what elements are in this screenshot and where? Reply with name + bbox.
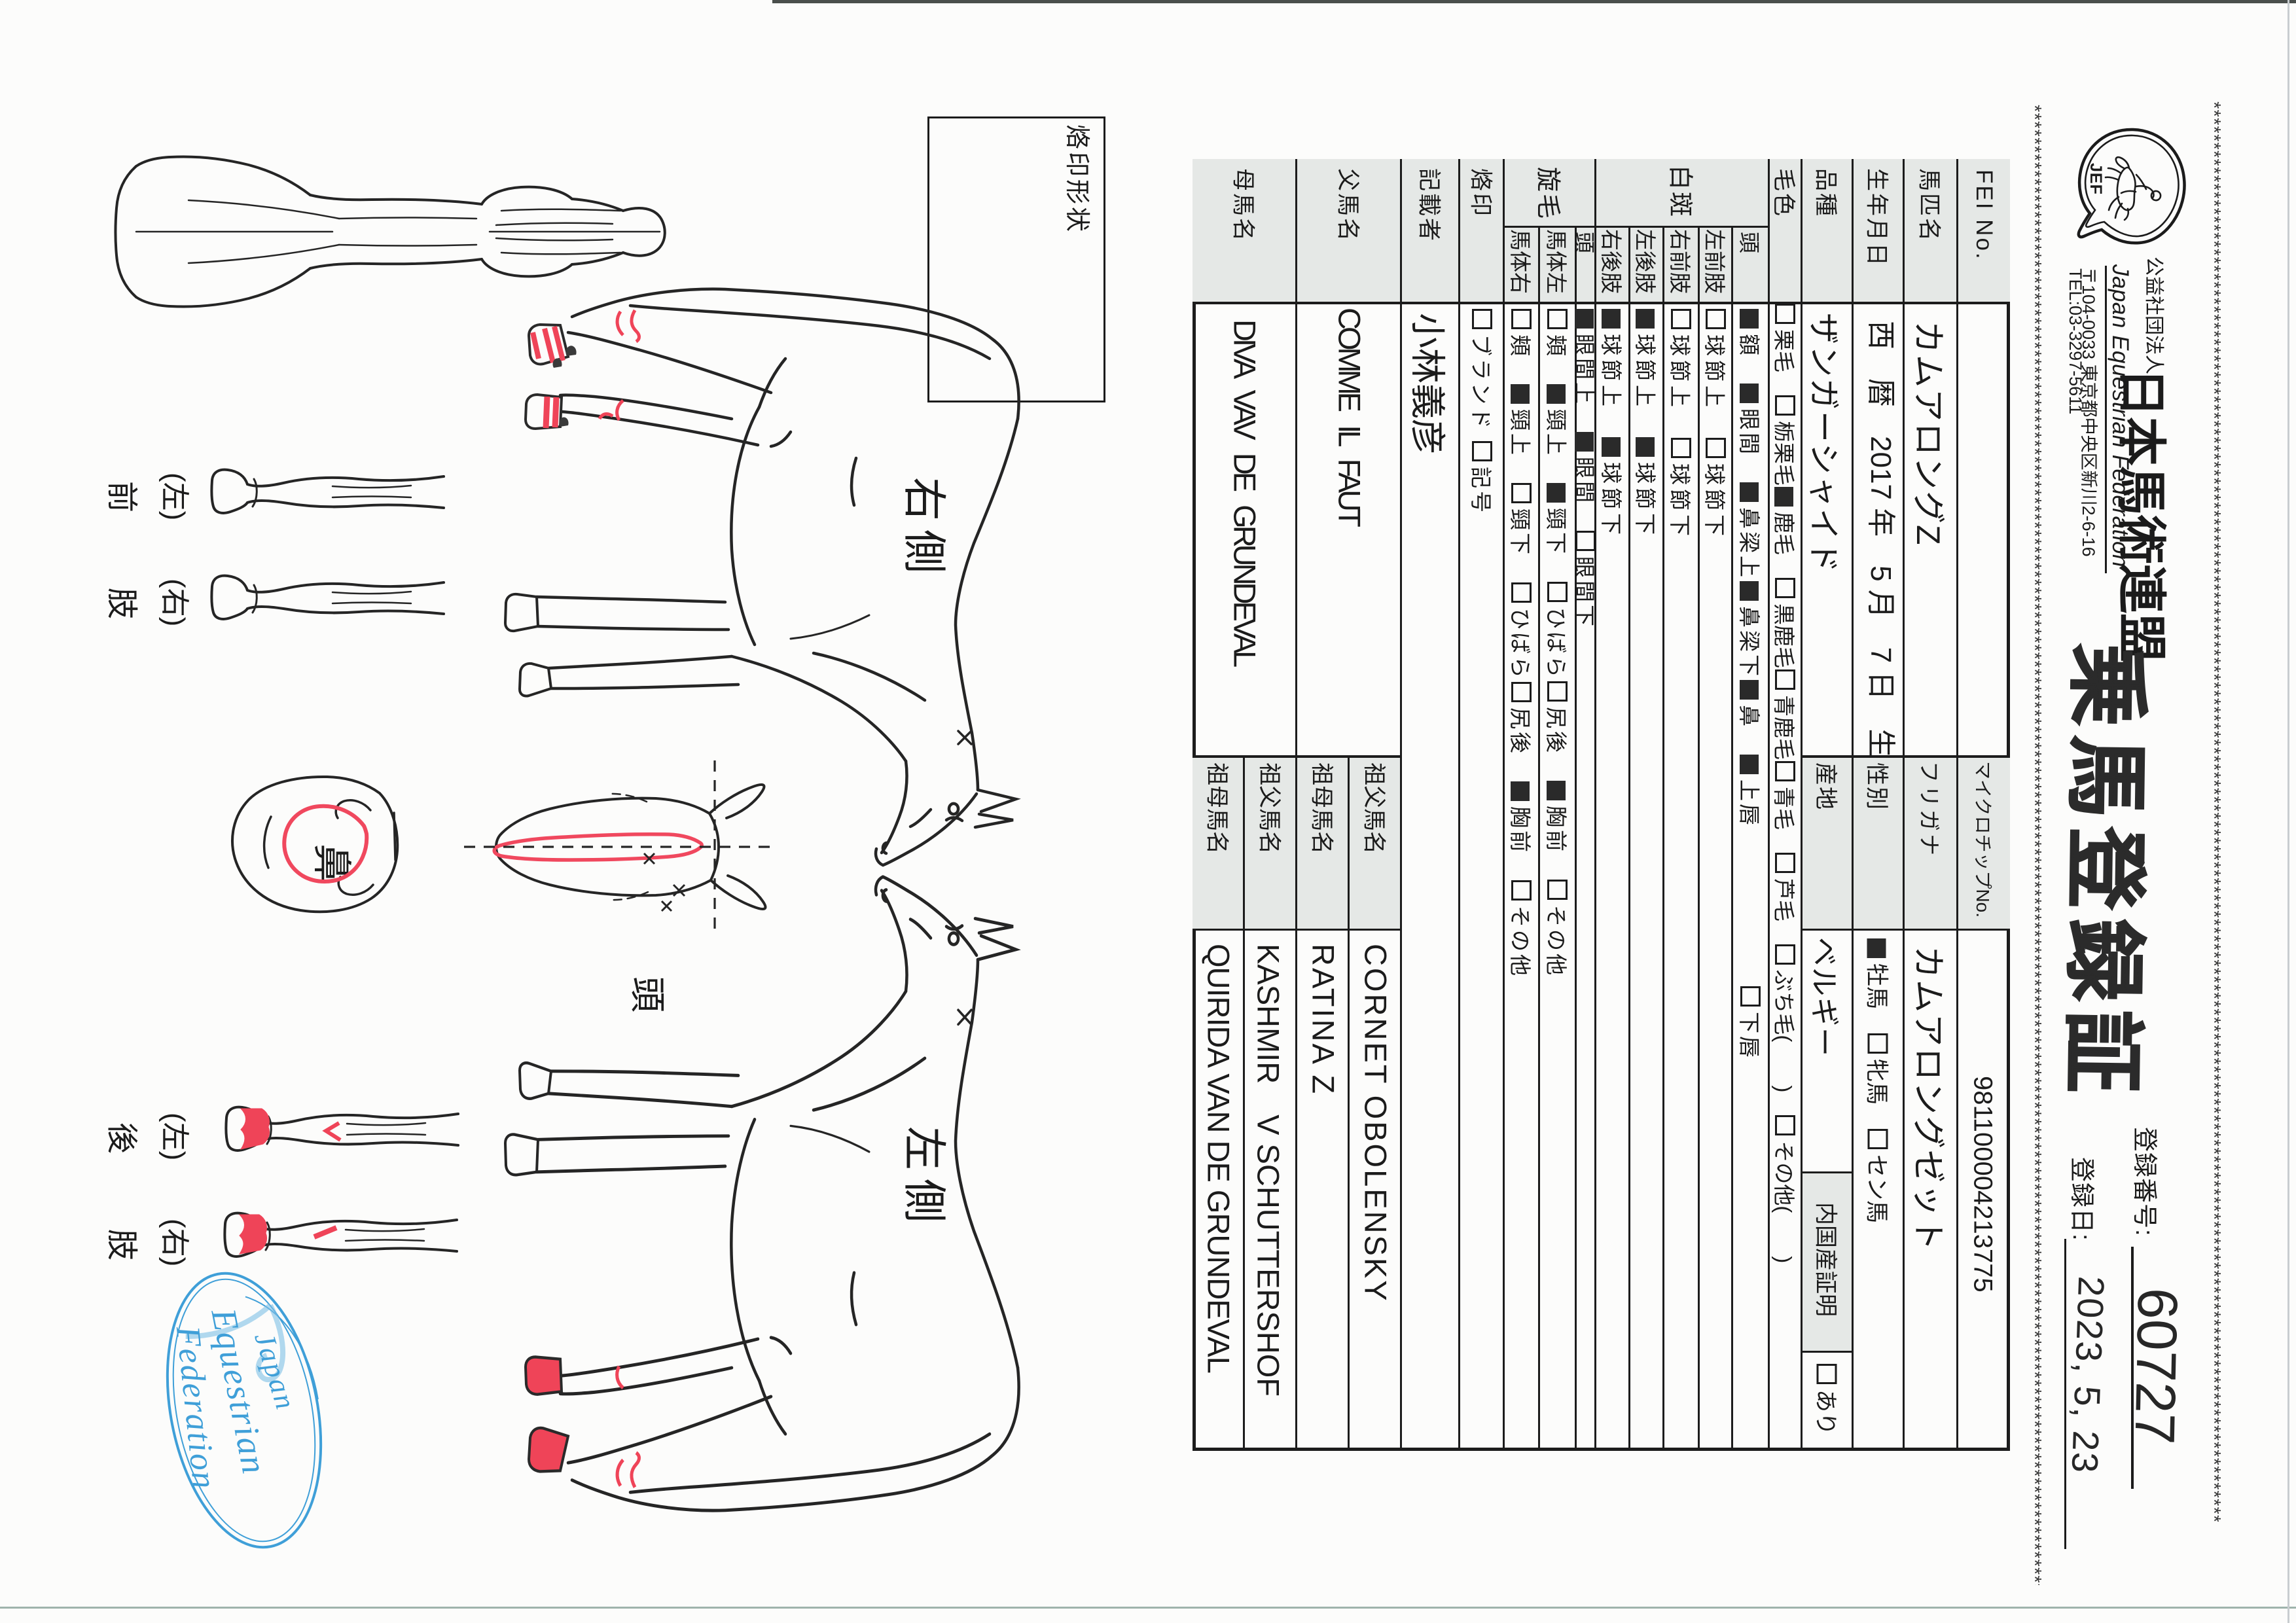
- svg-text:JEF: JEF: [2087, 163, 2105, 195]
